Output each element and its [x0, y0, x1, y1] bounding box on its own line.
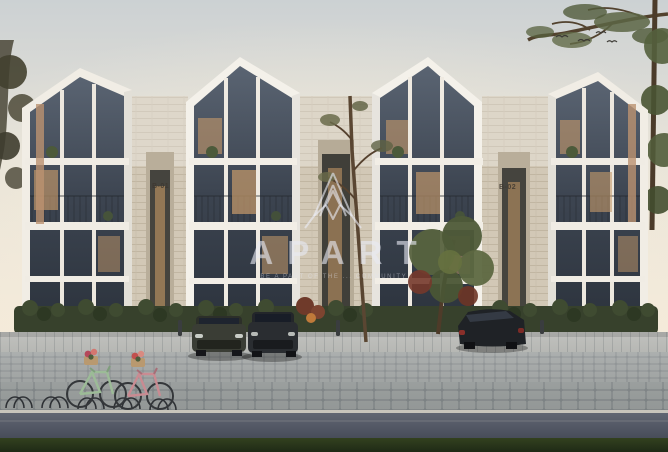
stone-section-1	[132, 96, 188, 332]
unit-label-b01: B-01	[152, 183, 169, 190]
stone-section-3	[482, 96, 548, 332]
road	[0, 410, 668, 438]
building-unit-2	[186, 57, 300, 332]
building-unit-1	[22, 68, 132, 332]
unit-label-b02: B-02	[499, 184, 516, 191]
scene-graphic	[0, 0, 668, 452]
suv-rear-angled	[456, 309, 528, 353]
render-image: B-01 B-02 APART BE A PART OF THE ... COM…	[0, 0, 668, 452]
grass-strip	[0, 438, 668, 452]
building-unit-4	[548, 72, 648, 332]
